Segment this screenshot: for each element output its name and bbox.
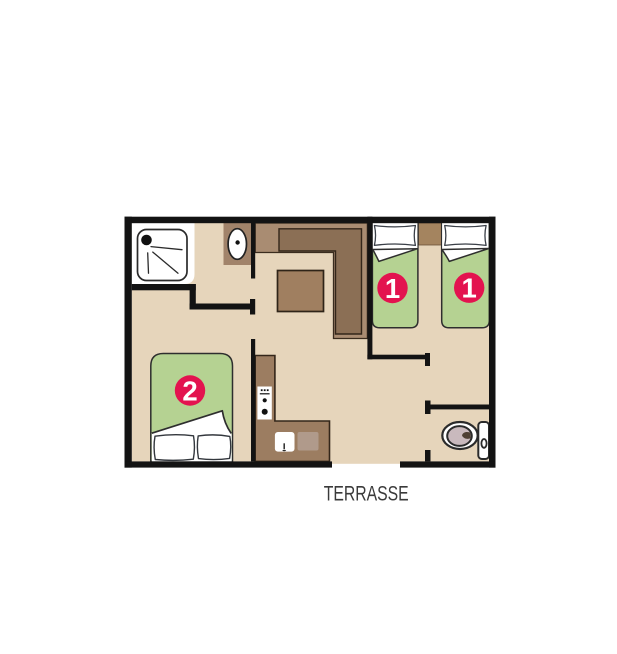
svg-text:1: 1 — [462, 273, 477, 304]
svg-text:TERRASSE: TERRASSE — [324, 482, 409, 505]
svg-text:1: 1 — [385, 273, 400, 304]
svg-text:2: 2 — [182, 376, 197, 407]
